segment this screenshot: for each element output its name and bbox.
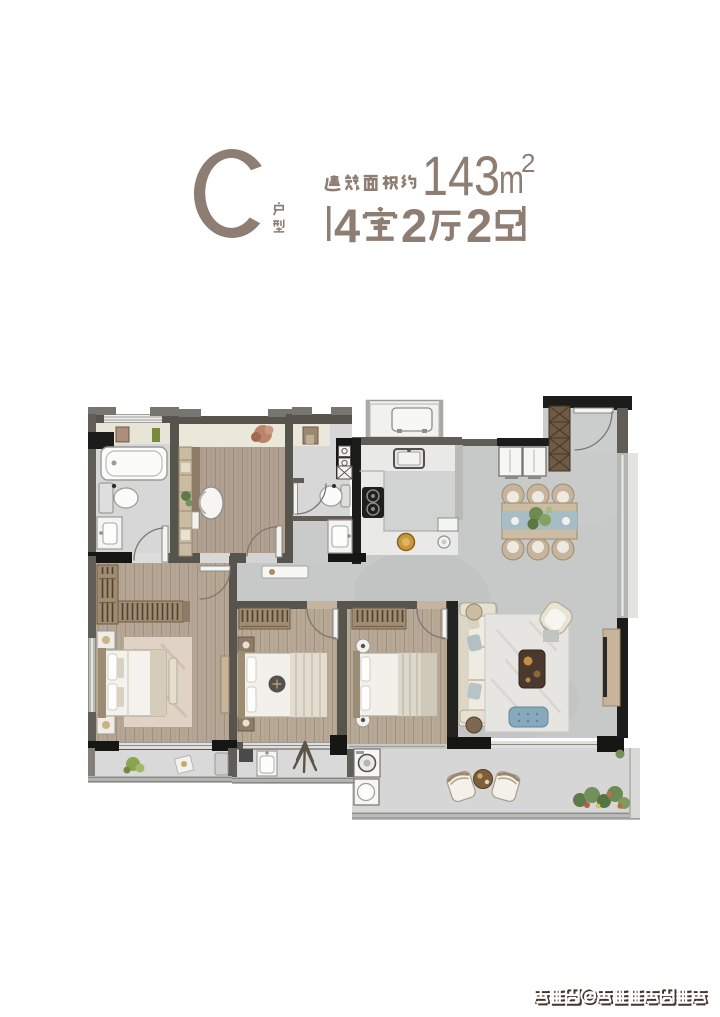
svg-text:143: 143 [422,144,500,207]
svg-text:2: 2 [521,148,535,178]
svg-text:2: 2 [401,199,427,252]
svg-text:4: 4 [334,199,360,252]
svg-text:2: 2 [466,199,492,252]
